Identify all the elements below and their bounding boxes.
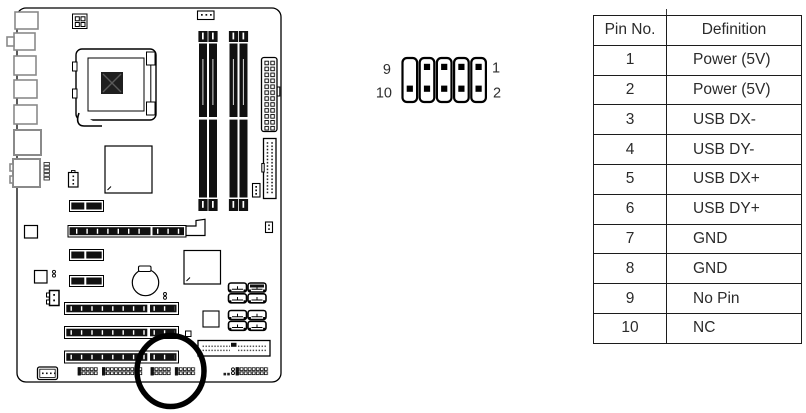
table-row: 4 USB DY- <box>594 135 802 165</box>
pcie-x1-slot <box>70 276 104 287</box>
pcie-x1-slot <box>70 201 104 212</box>
table-row: 5 USB DX+ <box>594 164 802 194</box>
pin-label-10: 10 <box>376 86 392 102</box>
pin-number-cell: 5 <box>594 164 667 194</box>
pin-definition-cell: GND <box>667 224 802 254</box>
pin-number-cell: 10 <box>594 313 667 343</box>
fdd-connector <box>198 341 270 357</box>
motherboard-and-pin-diagram: 9 10 1 2 <box>0 0 560 413</box>
pin-definition-table: Pin No. Definition 1 Power (5V) 2 Power … <box>593 15 802 344</box>
spdif-pin-stack <box>44 163 49 181</box>
pin-definition-cell: USB DX- <box>667 105 802 135</box>
pci-slot <box>65 303 179 315</box>
table-header-pin-no: Pin No. <box>594 16 667 46</box>
northbridge-chip <box>105 146 152 193</box>
table-row: 7 GND <box>594 224 802 254</box>
clock-chip <box>25 226 38 239</box>
table-row: 10 NC <box>594 313 802 343</box>
floppy-power-connector <box>38 367 58 380</box>
pin-number-cell: 2 <box>594 75 667 105</box>
tiny-component <box>186 331 192 337</box>
bios-chip <box>35 271 48 284</box>
southbridge-chip <box>184 251 221 285</box>
ide-connector <box>262 139 276 199</box>
table-header-row: Pin No. Definition <box>594 16 802 46</box>
pin-definition-cell: Power (5V) <box>667 45 802 75</box>
pin-number-cell: 6 <box>594 194 667 224</box>
motherboard-diagram <box>7 8 281 407</box>
pin-definition-cell: GND <box>667 254 802 284</box>
atx12v-connector <box>73 14 88 29</box>
pin-definition-cell: No Pin <box>667 284 802 314</box>
pin-number-cell: 4 <box>594 135 667 165</box>
pin-number-cell: 1 <box>594 45 667 75</box>
table-row: 8 GND <box>594 254 802 284</box>
pin-number-cell: 7 <box>594 224 667 254</box>
table-row: 6 USB DY+ <box>594 194 802 224</box>
cpu-socket <box>73 49 157 126</box>
pin-table-container: Pin No. Definition 1 Power (5V) 2 Power … <box>593 15 802 344</box>
pci-slot <box>65 351 179 363</box>
cpu-fan-header <box>198 11 215 20</box>
table-row: 3 USB DX- <box>594 105 802 135</box>
pin-number-cell: 9 <box>594 284 667 314</box>
io-chip <box>203 311 219 327</box>
usb-pin-header-diagram: 9 10 1 2 <box>376 58 501 102</box>
sys-fan-header <box>253 184 261 198</box>
pin-label-1: 1 <box>492 61 500 77</box>
table-header-definition: Definition <box>667 16 802 46</box>
front-audio-header <box>69 171 79 188</box>
table-row: 9 No Pin <box>594 284 802 314</box>
pcie-x1-slot <box>70 250 104 261</box>
table-divider-overshoot <box>666 9 667 15</box>
pin-number-cell: 8 <box>594 254 667 284</box>
small-2pin-header <box>266 222 273 233</box>
pin-column <box>403 58 418 102</box>
atx-power-connector <box>262 58 280 132</box>
pin-number-cell: 3 <box>594 105 667 135</box>
table-row: 2 Power (5V) <box>594 75 802 105</box>
pin-definition-cell: USB DY- <box>667 135 802 165</box>
pin-definition-cell: NC <box>667 313 802 343</box>
pin-label-2: 2 <box>493 86 501 102</box>
pin-definition-cell: Power (5V) <box>667 75 802 105</box>
pin-definition-cell: USB DY+ <box>667 194 802 224</box>
table-row: 1 Power (5V) <box>594 45 802 75</box>
manual-page: 9 10 1 2 Pin No. Definition 1 Power (5V) <box>0 0 806 413</box>
pin-definition-cell: USB DX+ <box>667 164 802 194</box>
pin-label-9: 9 <box>383 62 391 78</box>
